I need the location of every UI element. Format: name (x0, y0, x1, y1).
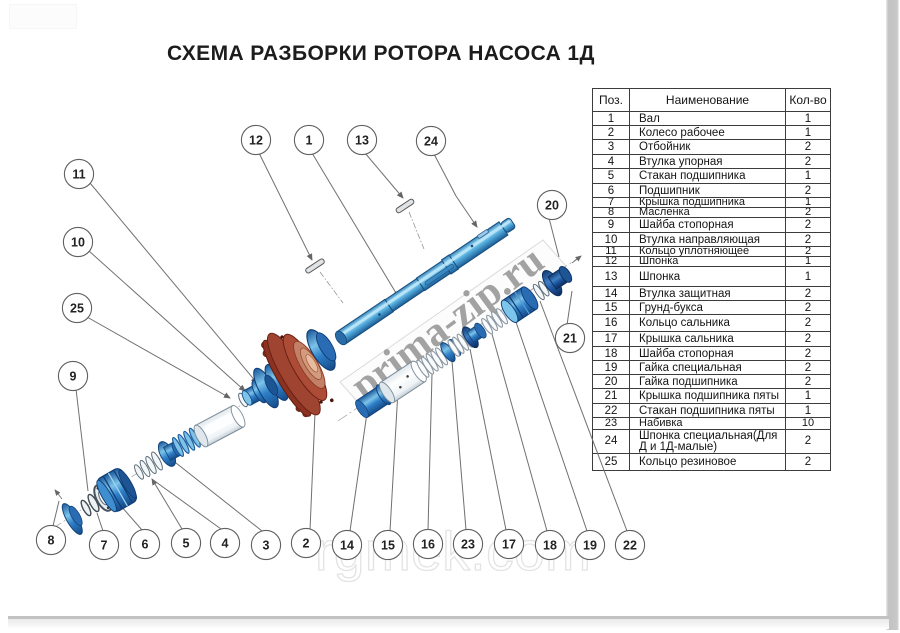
svg-text:12: 12 (249, 134, 263, 148)
svg-text:18: 18 (543, 539, 557, 553)
svg-text:7: 7 (101, 539, 108, 553)
svg-text:4: 4 (222, 537, 229, 551)
svg-text:9: 9 (70, 370, 77, 384)
svg-text:22: 22 (623, 539, 637, 553)
svg-text:5: 5 (183, 537, 190, 551)
svg-text:14: 14 (340, 539, 354, 553)
svg-text:17: 17 (502, 538, 516, 552)
svg-text:25: 25 (70, 302, 84, 316)
svg-text:13: 13 (355, 134, 369, 148)
svg-text:23: 23 (461, 538, 475, 552)
svg-text:1: 1 (306, 134, 313, 148)
svg-text:8: 8 (48, 534, 55, 548)
svg-text:2: 2 (303, 537, 310, 551)
svg-text:16: 16 (421, 538, 435, 552)
svg-text:19: 19 (583, 539, 597, 553)
svg-text:15: 15 (381, 539, 395, 553)
svg-text:20: 20 (545, 199, 559, 213)
svg-text:11: 11 (72, 168, 85, 182)
svg-text:10: 10 (71, 236, 85, 250)
svg-text:24: 24 (424, 135, 438, 149)
svg-text:3: 3 (263, 539, 270, 553)
svg-text:6: 6 (142, 538, 149, 552)
svg-text:21: 21 (563, 332, 577, 346)
